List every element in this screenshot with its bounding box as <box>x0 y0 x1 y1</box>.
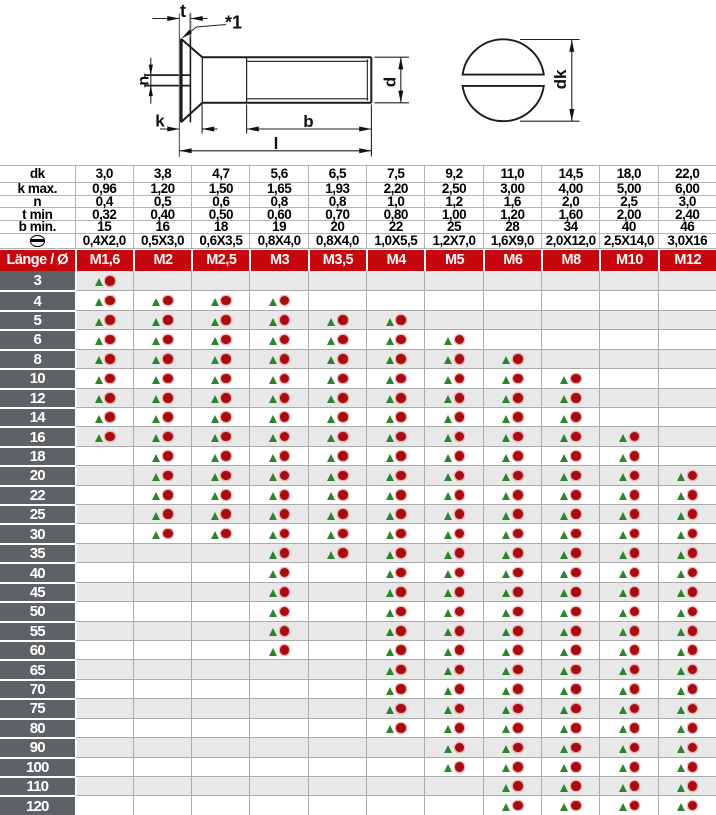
svg-text:*1: *1 <box>225 13 242 33</box>
svg-text:t: t <box>180 1 186 21</box>
svg-text:l: l <box>274 134 279 153</box>
svg-text:k: k <box>155 112 165 131</box>
svg-text:n: n <box>136 76 153 86</box>
svg-text:dk: dk <box>551 69 570 89</box>
svg-text:d: d <box>380 77 399 87</box>
svg-text:b: b <box>303 112 313 131</box>
